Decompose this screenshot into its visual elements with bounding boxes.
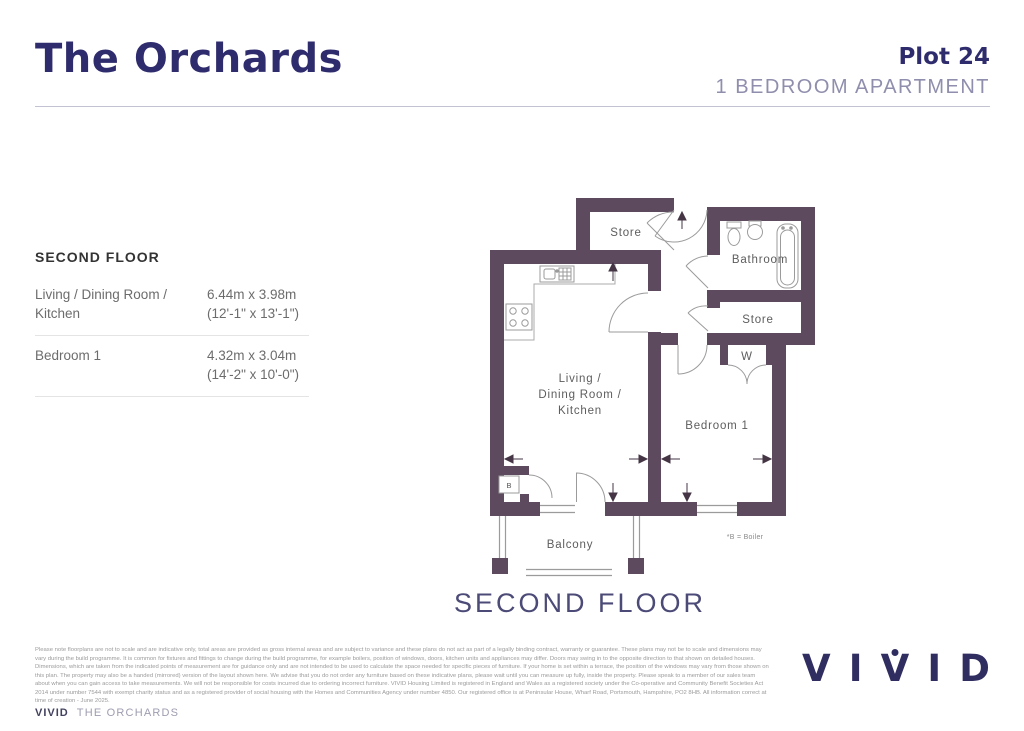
wardrobe-label: W [741,351,753,363]
dimension-row-living: Living / Dining Room / Kitchen 6.44m x 3… [35,275,309,336]
living-label-line1: Living / [559,373,602,385]
bedroom-label: Bedroom 1 [685,420,748,432]
balcony-label: Balcony [547,539,594,551]
floor-heading: SECOND FLOOR [35,249,309,265]
floorplan-caption: SECOND FLOOR [430,588,730,619]
living-label-line2: Dining Room / [538,389,621,401]
store-top-label: Store [610,227,642,239]
floorplan-brochure-page: The Orchards Plot 24 1 BEDROOM APARTMENT… [0,0,1024,731]
imperial-dimension: (14'-2" x 10'-0") [207,366,309,385]
logo-letter: D [959,650,990,687]
toilet-icon [727,222,741,246]
plot-number: Plot 24 [898,44,990,70]
footer-development-name: THE ORCHARDS [77,707,179,719]
boiler-label: B [506,481,511,490]
dimensions-panel: SECOND FLOOR Living / Dining Room / Kitc… [35,249,309,397]
room-name: Bedroom 1 [35,347,193,385]
logo-letter: I [927,650,941,687]
living-label-line3: Kitchen [558,405,602,417]
disclaimer-text: Please note floorplans are not to scale … [35,646,771,706]
store-mid-label: Store [742,314,774,326]
basin-icon [748,221,763,240]
footer-brand: VIVID [35,707,69,719]
floorplan-drawing: B Store Bathroom Store W Living / Dining… [470,190,830,590]
boiler-cupboard: B [499,476,519,493]
logo-person-icon: V [881,650,910,687]
header-divider [35,106,990,107]
metric-dimension: 6.44m x 3.98m [207,286,309,305]
room-dimensions: 6.44m x 3.98m (12'-1" x 13'-1") [193,286,309,324]
development-title: The Orchards [35,36,343,82]
dimension-row-bedroom: Bedroom 1 4.32m x 3.04m (14'-2" x 10'-0"… [35,336,309,397]
imperial-dimension: (12'-1" x 13'-1") [207,305,309,324]
kitchen-sink [540,266,574,282]
room-dimensions: 4.32m x 3.04m (14'-2" x 10'-0") [193,347,309,385]
metric-dimension: 4.32m x 3.04m [207,347,309,366]
bathroom-label: Bathroom [732,254,788,266]
logo-person-head [891,649,898,656]
logo-letter: V [802,650,831,687]
footer-brand-line: VIVID THE ORCHARDS [35,707,179,719]
logo-letter: I [849,650,863,687]
hob-icon [506,304,532,330]
boiler-note: *B = Boiler [727,534,764,541]
room-name: Living / Dining Room / Kitchen [35,286,193,324]
apartment-type: 1 BEDROOM APARTMENT [716,76,990,99]
vivid-logo: V I V I D [802,650,990,687]
